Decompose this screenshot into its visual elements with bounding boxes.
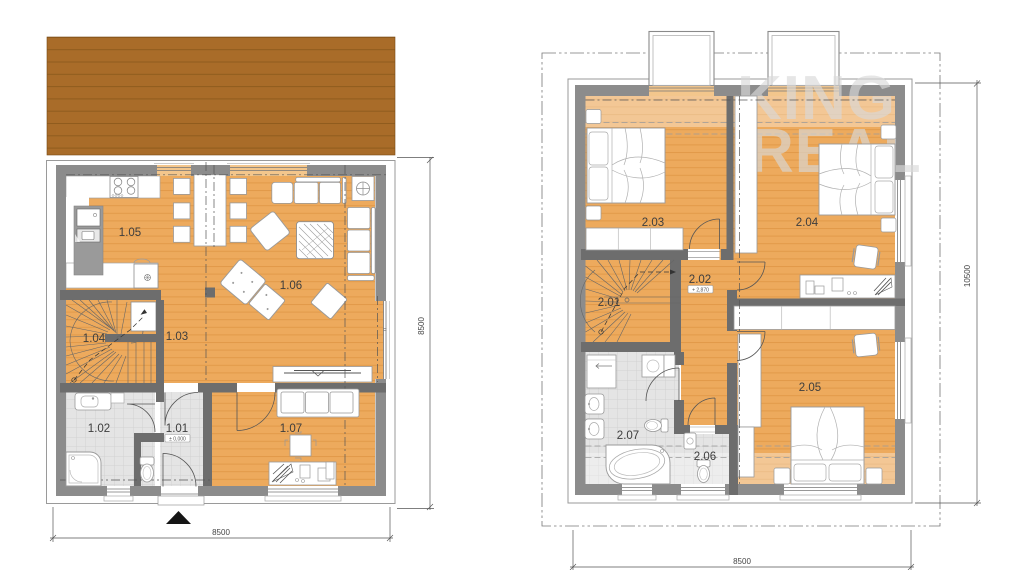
- svg-text:1.04: 1.04: [83, 333, 106, 345]
- svg-text:1.02: 1.02: [88, 423, 110, 435]
- svg-text:1.05: 1.05: [119, 227, 141, 239]
- svg-text:2.05: 2.05: [799, 382, 821, 394]
- svg-text:1.03: 1.03: [166, 331, 188, 343]
- svg-text:2.01: 2.01: [598, 297, 620, 309]
- svg-text:± 0,000: ± 0,000: [169, 436, 186, 442]
- svg-text:2.02: 2.02: [689, 274, 711, 286]
- svg-text:1.06: 1.06: [280, 280, 302, 292]
- svg-text:10500: 10500: [963, 264, 972, 287]
- svg-text:2.03: 2.03: [642, 217, 664, 229]
- svg-text:+ 2,870: + 2,870: [692, 287, 709, 293]
- svg-text:2.06: 2.06: [694, 451, 716, 463]
- svg-text:8500: 8500: [733, 557, 751, 566]
- svg-text:2.07: 2.07: [617, 430, 639, 442]
- svg-text:8500: 8500: [212, 528, 230, 537]
- svg-text:8500: 8500: [417, 317, 426, 335]
- svg-text:2.04: 2.04: [796, 217, 819, 229]
- svg-text:1.07: 1.07: [280, 423, 302, 435]
- svg-text:1.01: 1.01: [166, 423, 188, 435]
